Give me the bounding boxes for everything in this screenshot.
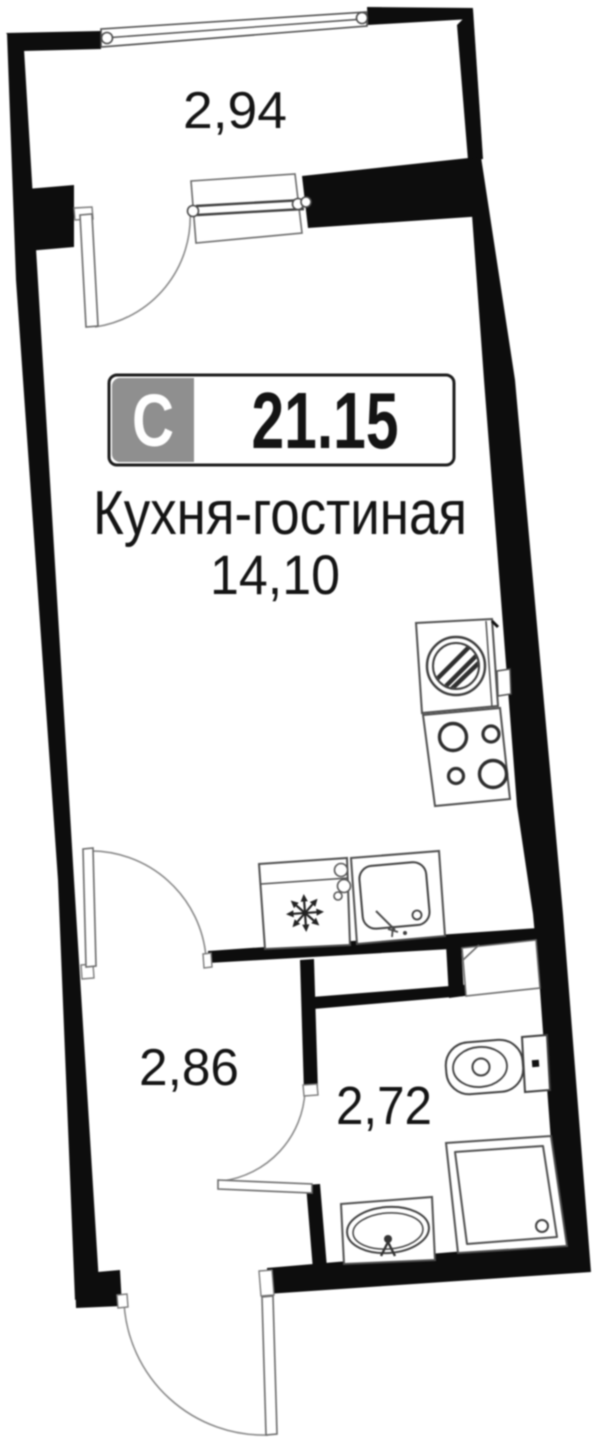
svg-text:2,94: 2,94	[183, 82, 287, 140]
svg-text:2,72: 2,72	[336, 1076, 432, 1136]
svg-text:Кухня-гостиная: Кухня-гостиная	[93, 479, 467, 548]
svg-text:21.15: 21.15	[252, 376, 399, 465]
svg-text:С: С	[132, 379, 174, 462]
svg-text:2,86: 2,86	[139, 1039, 239, 1097]
svg-text:14,10: 14,10	[210, 543, 340, 606]
